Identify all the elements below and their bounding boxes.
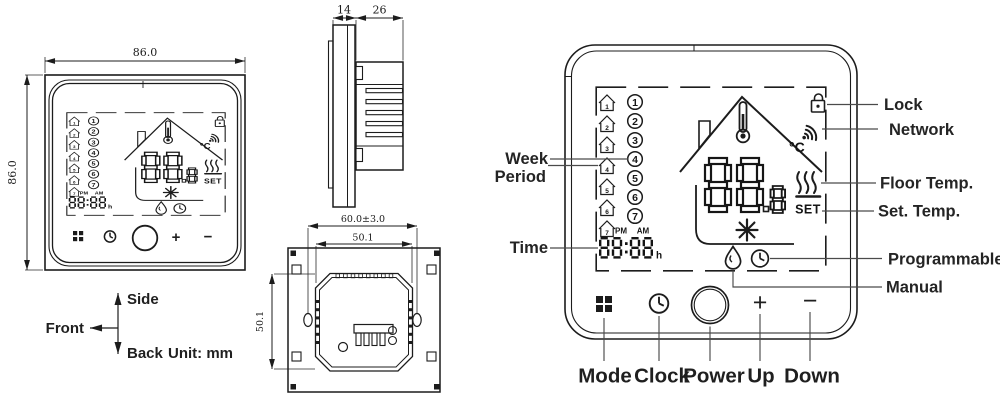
front-buttons: + −: [73, 226, 213, 251]
back-inner-width-dim: 50.1: [352, 233, 373, 244]
back-inner-height-dim: 50.1: [255, 311, 266, 332]
clock-button[interactable]: [650, 294, 669, 313]
unit-label: Unit: mm: [168, 345, 233, 362]
mounting-hole-left: [304, 314, 312, 327]
axis-back-label: Back: [127, 345, 164, 362]
set-temp-callout-label: Set. Temp.: [878, 203, 960, 221]
axis-side-label: Side: [127, 291, 159, 308]
clock-button-mini[interactable]: [104, 231, 115, 242]
vent-fins: [366, 89, 403, 137]
down-label: Down: [784, 365, 840, 388]
period-callout-label: Period: [495, 168, 546, 186]
back-view: 60.0±3.0 50.1 50.1: [255, 214, 440, 392]
thermostat-spec-diagram: 11223344556677 PM AM h: [0, 0, 1000, 400]
axis-front-label: Front: [46, 320, 84, 337]
lock-callout-label: Lock: [884, 96, 923, 114]
back-width-dim: 60.0±3.0: [341, 214, 385, 225]
front-lcd: [67, 113, 225, 216]
time-callout-label: Time: [510, 239, 548, 257]
orientation-axes: Side Front Back Unit: mm: [46, 291, 233, 362]
programmable-callout-label: Programmable: [888, 251, 1000, 269]
front-height-dim: 86.0: [6, 160, 19, 185]
side-back-depth-dim: 26: [373, 4, 387, 17]
down-button-mini[interactable]: −: [204, 229, 213, 246]
terminal-block: [354, 325, 397, 346]
mounting-octagon-outer: [316, 274, 413, 372]
detail-buttons: + −: [596, 287, 817, 324]
detail-view: + − Week Period Time Lock Network Floor …: [495, 45, 1000, 388]
mounting-octagon-inner: [320, 278, 409, 368]
manual-callout-label: Manual: [886, 279, 943, 297]
up-label: Up: [747, 365, 774, 388]
power-button-mini[interactable]: [133, 226, 158, 251]
up-button-mini[interactable]: +: [172, 229, 181, 246]
detail-lcd: [596, 87, 826, 271]
mounting-hole-right: [413, 314, 421, 327]
mode-button-mini[interactable]: [73, 231, 83, 241]
side-view: 14 26: [329, 4, 404, 208]
floor-temp-callout-label: Floor Temp.: [880, 175, 973, 193]
front-width-dim: 86.0: [133, 46, 158, 59]
mode-label: Mode: [578, 365, 632, 388]
network-callout-label: Network: [889, 121, 955, 139]
side-panel: [333, 25, 355, 207]
diagram-canvas: 11223344556677 PM AM h: [0, 0, 1000, 400]
front-view: 86.0 86.0 + −: [6, 46, 245, 362]
power-button[interactable]: [692, 287, 729, 324]
mode-button[interactable]: [596, 296, 612, 312]
side-front-depth-dim: 14: [337, 4, 351, 17]
clock-label: Clock: [634, 365, 690, 388]
power-label: Power: [683, 365, 745, 388]
week-callout-label: Week: [505, 150, 549, 168]
screw-hole: [339, 343, 348, 352]
up-button[interactable]: +: [753, 289, 768, 317]
down-button[interactable]: −: [803, 287, 818, 315]
